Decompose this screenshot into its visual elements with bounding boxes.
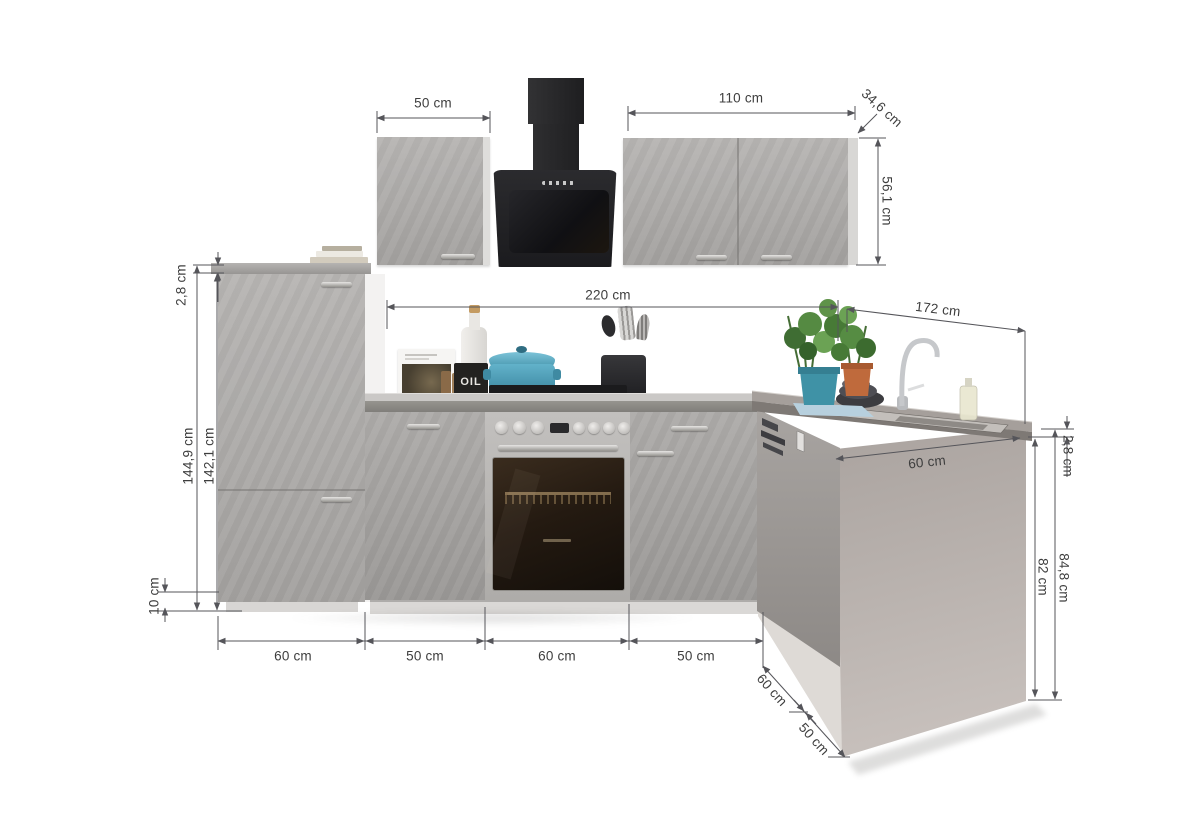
dim-wall-right-width: 110 cm	[719, 91, 763, 106]
right-end-panel	[836, 428, 1026, 757]
herb-pot-terracotta	[843, 366, 871, 396]
dish-soap-cap	[965, 378, 972, 387]
dim-plinth: 10 cm	[147, 577, 162, 615]
dim-seg-base1: 50 cm	[406, 649, 444, 664]
faucet-lever	[908, 385, 924, 390]
dim-tall-total: 144,9 cm	[181, 427, 196, 484]
dim-base-height: 82 cm	[1036, 558, 1051, 596]
dishwasher-handle	[797, 431, 804, 452]
dim-seg-oven: 60 cm	[538, 649, 576, 664]
dim-seg-base2: 50 cm	[677, 649, 715, 664]
dim-worktop-total: 84,8 cm	[1057, 553, 1072, 602]
herb-plants	[784, 299, 876, 405]
herb-pot-teal	[800, 371, 838, 405]
kitchen-dimension-diagram: OIL	[0, 0, 1200, 817]
dim-wall-height: 56,1 cm	[880, 176, 895, 225]
dish-soap-bottle	[960, 386, 977, 420]
scene-and-dimension-overlay	[0, 0, 1200, 817]
dim-seg-tall: 60 cm	[274, 649, 312, 664]
herb-pot-teal-rim	[798, 367, 840, 374]
dim-tall-worktop: 2,8 cm	[174, 264, 189, 306]
herb-pot-terracotta-rim	[841, 363, 873, 369]
dim-wall-left-width: 50 cm	[414, 96, 452, 111]
dim-right-worktop: 2,8 cm	[1061, 435, 1076, 477]
chrome-faucet	[902, 340, 937, 406]
dim-left-run: 220 cm	[585, 288, 630, 303]
dim-tall-body: 142,1 cm	[202, 427, 217, 484]
